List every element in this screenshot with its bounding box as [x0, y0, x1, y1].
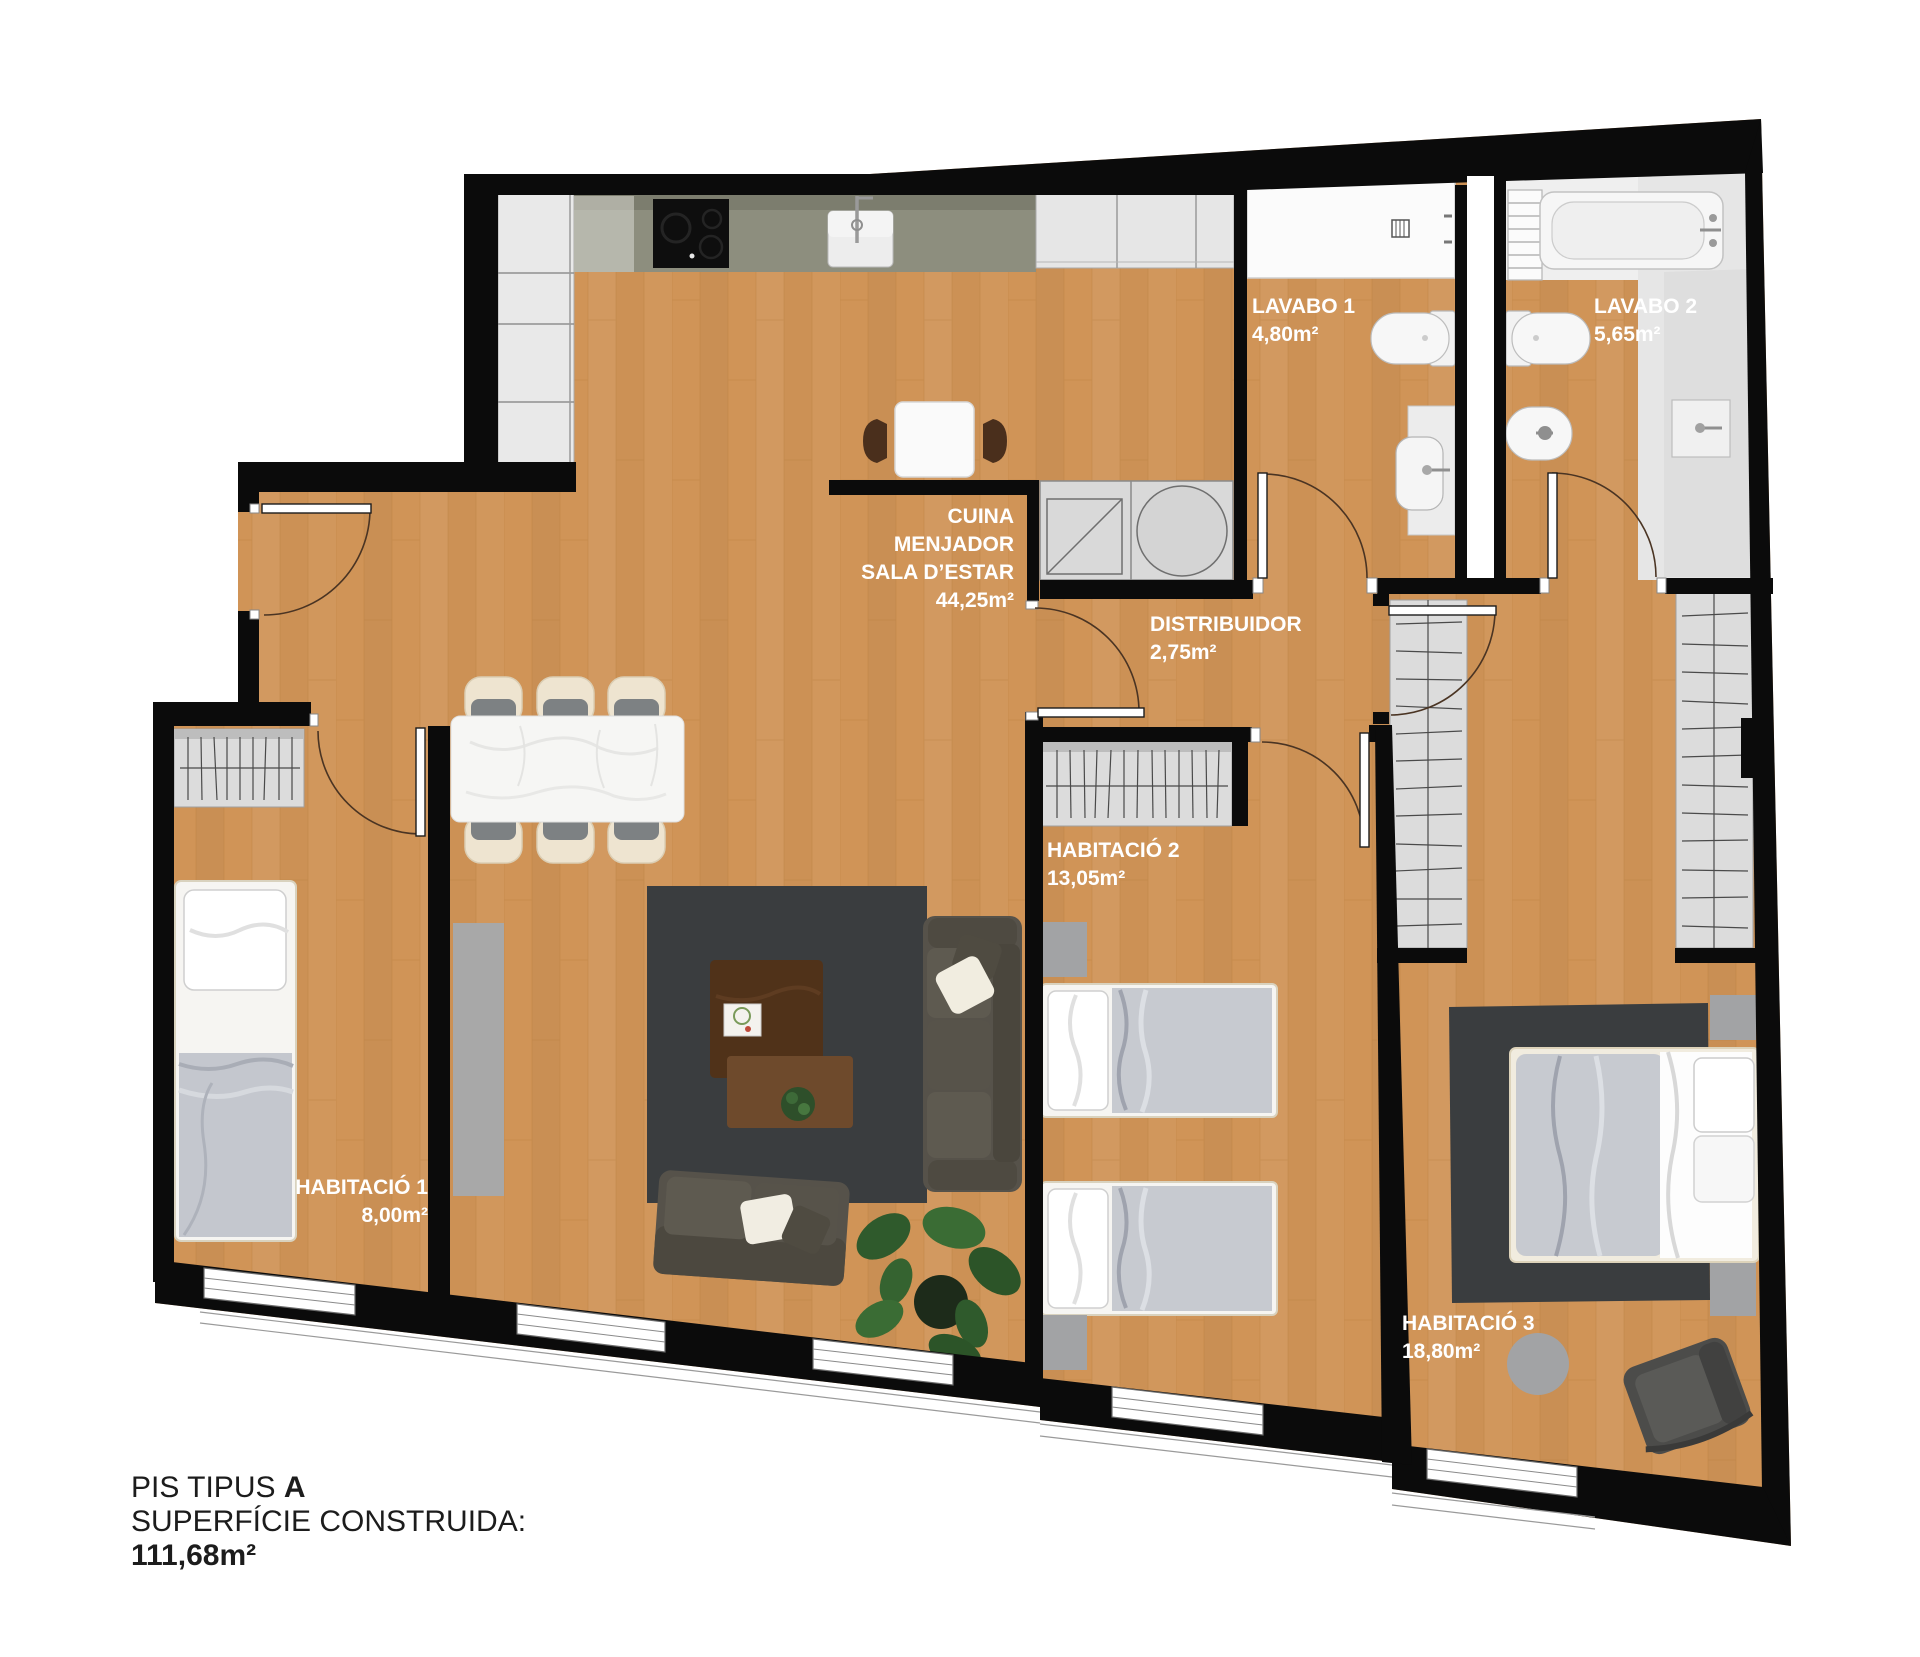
svg-text:DISTRIBUIDOR: DISTRIBUIDOR — [1150, 613, 1302, 636]
svg-text:18,80m²: 18,80m² — [1402, 1340, 1480, 1363]
svg-text:2,75m²: 2,75m² — [1150, 641, 1217, 664]
svg-text:HABITACIÓ 2: HABITACIÓ 2 — [1047, 838, 1180, 862]
svg-text:13,05m²: 13,05m² — [1047, 867, 1125, 890]
svg-text:44,25m²: 44,25m² — [936, 589, 1014, 612]
svg-text:111,68m²: 111,68m² — [131, 1539, 256, 1572]
svg-text:CUINA: CUINA — [948, 505, 1015, 528]
svg-text:SALA D’ESTAR: SALA D’ESTAR — [861, 561, 1014, 584]
svg-text:HABITACIÓ 3: HABITACIÓ 3 — [1402, 1311, 1535, 1335]
svg-text:HABITACIÓ 1: HABITACIÓ 1 — [295, 1175, 428, 1199]
svg-text:5,65m²: 5,65m² — [1594, 323, 1661, 346]
svg-text:8,00m²: 8,00m² — [361, 1204, 428, 1227]
svg-text:PIS TIPUS A: PIS TIPUS A — [131, 1471, 306, 1504]
svg-text:LAVABO 2: LAVABO 2 — [1594, 295, 1697, 318]
svg-text:MENJADOR: MENJADOR — [894, 533, 1014, 556]
svg-text:SUPERFÍCIE CONSTRUIDA:: SUPERFÍCIE CONSTRUIDA: — [131, 1505, 526, 1538]
svg-text:4,80m²: 4,80m² — [1252, 323, 1319, 346]
svg-text:LAVABO 1: LAVABO 1 — [1252, 295, 1355, 318]
